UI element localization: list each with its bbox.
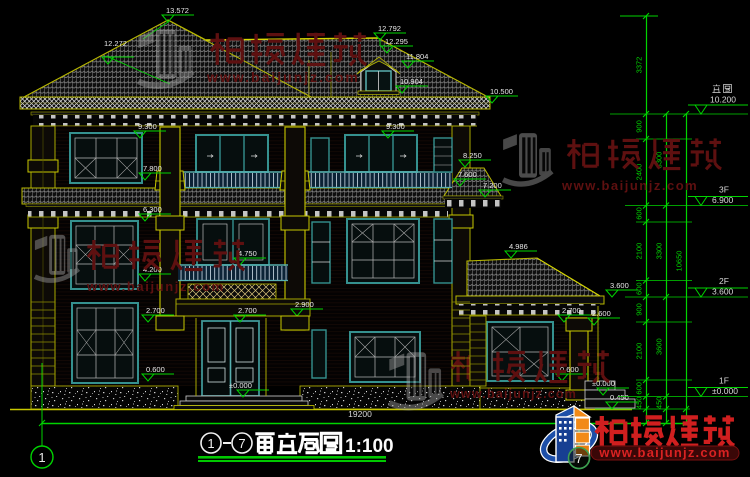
svg-text:600: 600 [635, 207, 644, 220]
svg-text:3.600: 3.600 [610, 281, 629, 290]
svg-text:1F: 1F [719, 376, 729, 386]
svg-text:10.904: 10.904 [400, 77, 423, 86]
svg-text:www.baijunjz.com: www.baijunjz.com [449, 387, 577, 401]
svg-text:3.600: 3.600 [712, 287, 734, 297]
svg-text:6.300: 6.300 [143, 205, 162, 214]
svg-text:12.272: 12.272 [104, 39, 127, 48]
svg-text:8.250: 8.250 [463, 151, 482, 160]
svg-text:12.792: 12.792 [378, 24, 401, 33]
svg-text:13.572: 13.572 [166, 6, 189, 15]
svg-text:11.804: 11.804 [406, 52, 428, 61]
svg-text:0.450: 0.450 [610, 393, 629, 402]
svg-text:7: 7 [575, 451, 582, 466]
svg-text:7.600: 7.600 [458, 170, 477, 179]
svg-text:2.600: 2.600 [592, 309, 611, 318]
svg-text:450: 450 [635, 397, 644, 410]
svg-text:900: 900 [635, 120, 644, 133]
svg-text:www.baijunjz.com: www.baijunjz.com [561, 178, 698, 193]
svg-text:4.986: 4.986 [509, 242, 528, 251]
svg-text:10.500: 10.500 [490, 87, 513, 96]
svg-text:7: 7 [238, 436, 245, 451]
svg-text:2F: 2F [719, 276, 729, 286]
svg-text:10650: 10650 [675, 251, 684, 272]
svg-text:2100: 2100 [635, 243, 644, 260]
svg-text:3372: 3372 [635, 57, 644, 74]
svg-text:±0.000: ±0.000 [712, 386, 738, 396]
svg-text:www.baijunjz.com: www.baijunjz.com [598, 445, 730, 460]
svg-text:3F: 3F [719, 185, 729, 195]
svg-text:600: 600 [635, 282, 644, 295]
svg-text:4.750: 4.750 [238, 249, 257, 258]
svg-text:19200: 19200 [348, 409, 372, 419]
svg-text:2.700: 2.700 [238, 306, 257, 315]
svg-text:9.300: 9.300 [386, 122, 405, 131]
svg-text:±0.000: ±0.000 [229, 381, 252, 390]
svg-text:6.900: 6.900 [712, 195, 734, 205]
svg-text:1: 1 [207, 436, 214, 451]
svg-text:www.baijunjz.com: www.baijunjz.com [206, 69, 360, 85]
svg-text:450: 450 [655, 397, 664, 410]
svg-text:2.700: 2.700 [562, 306, 581, 315]
svg-text:www.baijunjz.com: www.baijunjz.com [86, 279, 225, 294]
svg-text:3600: 3600 [655, 338, 664, 355]
svg-text:600: 600 [635, 382, 644, 395]
svg-text:3300: 3300 [655, 243, 664, 260]
svg-text:2.700: 2.700 [146, 306, 165, 315]
svg-text:7.800: 7.800 [143, 164, 162, 173]
svg-text:1:100: 1:100 [345, 436, 394, 457]
svg-text:2100: 2100 [635, 343, 644, 360]
svg-text:12.295: 12.295 [385, 37, 408, 46]
svg-text:2.900: 2.900 [295, 300, 314, 309]
svg-text:10.200: 10.200 [710, 95, 736, 105]
svg-text:1: 1 [38, 450, 45, 465]
svg-text:9.300: 9.300 [138, 122, 157, 131]
svg-text:7.200: 7.200 [483, 181, 502, 190]
svg-text:900: 900 [635, 303, 644, 316]
svg-text:0.600: 0.600 [146, 365, 165, 374]
